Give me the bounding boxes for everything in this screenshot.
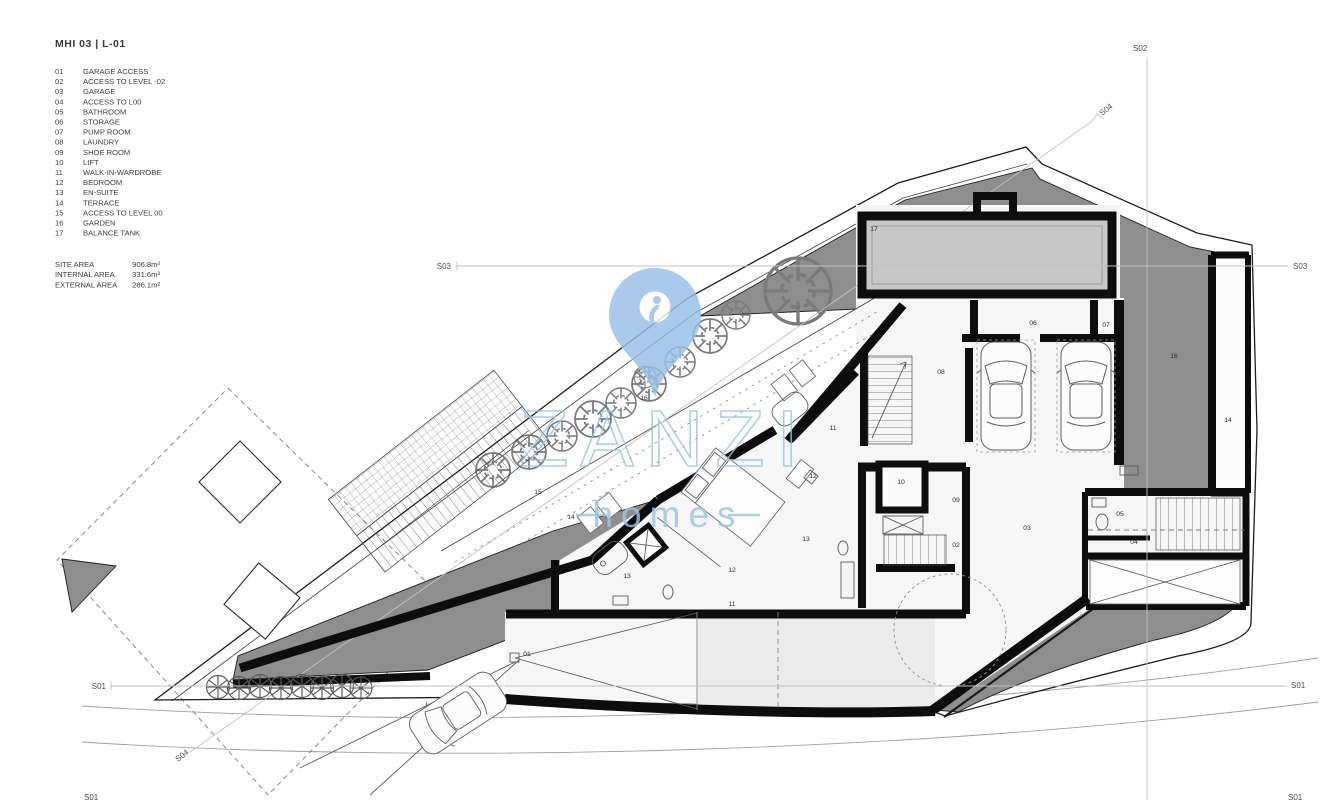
- section-label-bottom-right: S01: [1288, 793, 1303, 800]
- car-icon: [977, 342, 1035, 450]
- section-label-s01-left: S01: [92, 682, 107, 691]
- legend-item-label: BEDROOM: [83, 178, 122, 187]
- legend-item-number: 12: [55, 178, 63, 187]
- area-value: 331.6m²: [132, 270, 160, 279]
- stair-02: [884, 535, 946, 565]
- legend-item-number: 07: [55, 128, 63, 137]
- legend-item-number: 13: [55, 188, 63, 197]
- section-label-s01-right: S01: [1291, 681, 1306, 690]
- legend-item-label: BATHROOM: [83, 107, 126, 116]
- room-label-07: 07: [1102, 322, 1110, 329]
- floor-plan-page: S02 S03 S03 S01 S01 S04 S04 S01 S01 1706…: [0, 0, 1320, 800]
- bush-icon: [270, 677, 293, 700]
- area-label: EXTERNAL AREA: [55, 280, 118, 289]
- room-label-09: 09: [952, 497, 960, 504]
- room-label-02: 02: [952, 542, 960, 549]
- legend-item-label: GARDEN: [83, 219, 116, 228]
- legend-item-label: ACCESS TO L00: [83, 97, 141, 106]
- legend-item-label: EN-SUITE: [83, 188, 118, 197]
- exterior-stair-15: [328, 370, 550, 572]
- room-label-06: 06: [1029, 320, 1037, 327]
- legend-item-label: ACCESS TO LEVEL 00: [83, 208, 163, 217]
- legend-item-number: 16: [55, 219, 63, 228]
- legend-item-label: STORAGE: [83, 118, 120, 127]
- room-label-04: 04: [1130, 539, 1138, 546]
- section-label-s04-top: S04: [1098, 101, 1115, 117]
- room-label-08: 08: [937, 369, 945, 376]
- legend-item-label: BALANCE TANK: [83, 229, 140, 238]
- legend-item-label: GARAGE: [83, 87, 116, 96]
- legend-item-label: GARAGE ACCESS: [83, 67, 148, 76]
- map-pin-icon: [609, 268, 701, 397]
- legend-item-number: 06: [55, 118, 63, 127]
- room-label-05: 05: [1116, 511, 1124, 518]
- room-label-03: 03: [1023, 525, 1031, 532]
- watermark-brand: ZANZI: [519, 394, 810, 483]
- room-label-12: 12: [728, 567, 736, 574]
- legend-item-number: 08: [55, 138, 63, 147]
- room-label-11: 11: [728, 601, 735, 608]
- area-value: 906.8m²: [132, 260, 160, 269]
- bush-icon: [311, 677, 334, 700]
- floor-plan-canvas: S02 S03 S03 S01 S01 S04 S04 S01 S01 1706…: [0, 0, 1320, 800]
- area-label: INTERNAL AREA: [55, 270, 116, 279]
- legend-item-number: 01: [55, 67, 63, 76]
- room-label-15: 15: [534, 489, 542, 496]
- tilted-structure-upper: [199, 441, 281, 523]
- room-label-14: 14: [1224, 417, 1232, 424]
- legend-item-number: 05: [55, 107, 63, 116]
- stair-08: [868, 356, 912, 444]
- room-label-10: 10: [897, 479, 905, 486]
- legend-item-label: WALK-IN-WARDROBE: [83, 168, 161, 177]
- legend-list: 01GARAGE ACCESS02ACCESS TO LEVEL -0203GA…: [55, 67, 165, 238]
- legend-item-number: 14: [55, 198, 63, 207]
- legend-item-number: 03: [55, 87, 63, 96]
- bush-icon: [207, 676, 230, 699]
- room-label-14: 14: [567, 514, 575, 521]
- legend-item-number: 11: [55, 168, 63, 177]
- ramp-tip: [62, 559, 116, 612]
- room-label-17: 17: [870, 226, 878, 233]
- legend-item-number: 17: [55, 229, 63, 238]
- legend-item-label: ACCESS TO LEVEL -02: [83, 77, 165, 86]
- legend-item-label: LAUNDRY: [83, 138, 119, 147]
- legend-item-label: LIFT: [83, 158, 99, 167]
- tree-icon: [722, 301, 750, 329]
- legend-item-number: 09: [55, 148, 63, 157]
- section-label-bottom-left: S01: [84, 793, 99, 800]
- room-label-13: 13: [802, 536, 810, 543]
- section-label-s02: S02: [1133, 44, 1148, 53]
- area-label: SITE AREA: [55, 260, 95, 269]
- room-label-11: 11: [829, 425, 836, 432]
- bush-icon: [228, 677, 251, 700]
- tilted-structure-lower: [224, 563, 300, 639]
- stair-04: [1156, 498, 1240, 550]
- legend-item-number: 02: [55, 77, 63, 86]
- room-label-01: 01: [523, 651, 531, 658]
- legend-item-number: 10: [55, 158, 63, 167]
- section-label-s03-right: S03: [1293, 262, 1308, 271]
- legend-item-label: TERRACE: [83, 198, 119, 207]
- legend-item-number: 15: [55, 208, 63, 217]
- drawing-title: MHI 03 | L-01: [55, 38, 126, 50]
- areas-block: SITE AREA906.8m²INTERNAL AREA331.6m²EXTE…: [55, 260, 160, 289]
- section-label-s03-left: S03: [437, 262, 452, 271]
- legend-item-number: 04: [55, 97, 63, 106]
- legend-item-label: PUMP ROOM: [83, 128, 131, 137]
- legend-item-label: SHOE ROOM: [83, 148, 130, 157]
- car-icon: [1057, 342, 1115, 450]
- area-value: 286.1m²: [132, 280, 160, 289]
- section-label-s04-bottom: S04: [174, 747, 191, 763]
- bush-icon: [350, 677, 372, 699]
- room-label-13: 13: [623, 573, 631, 580]
- lift-10: [879, 464, 925, 510]
- legend-panel: MHI 03 | L-01 01GARAGE ACCESS02ACCESS TO…: [55, 38, 165, 289]
- room-label-16: 16: [1170, 353, 1178, 360]
- watermark-sub: homes: [592, 494, 743, 535]
